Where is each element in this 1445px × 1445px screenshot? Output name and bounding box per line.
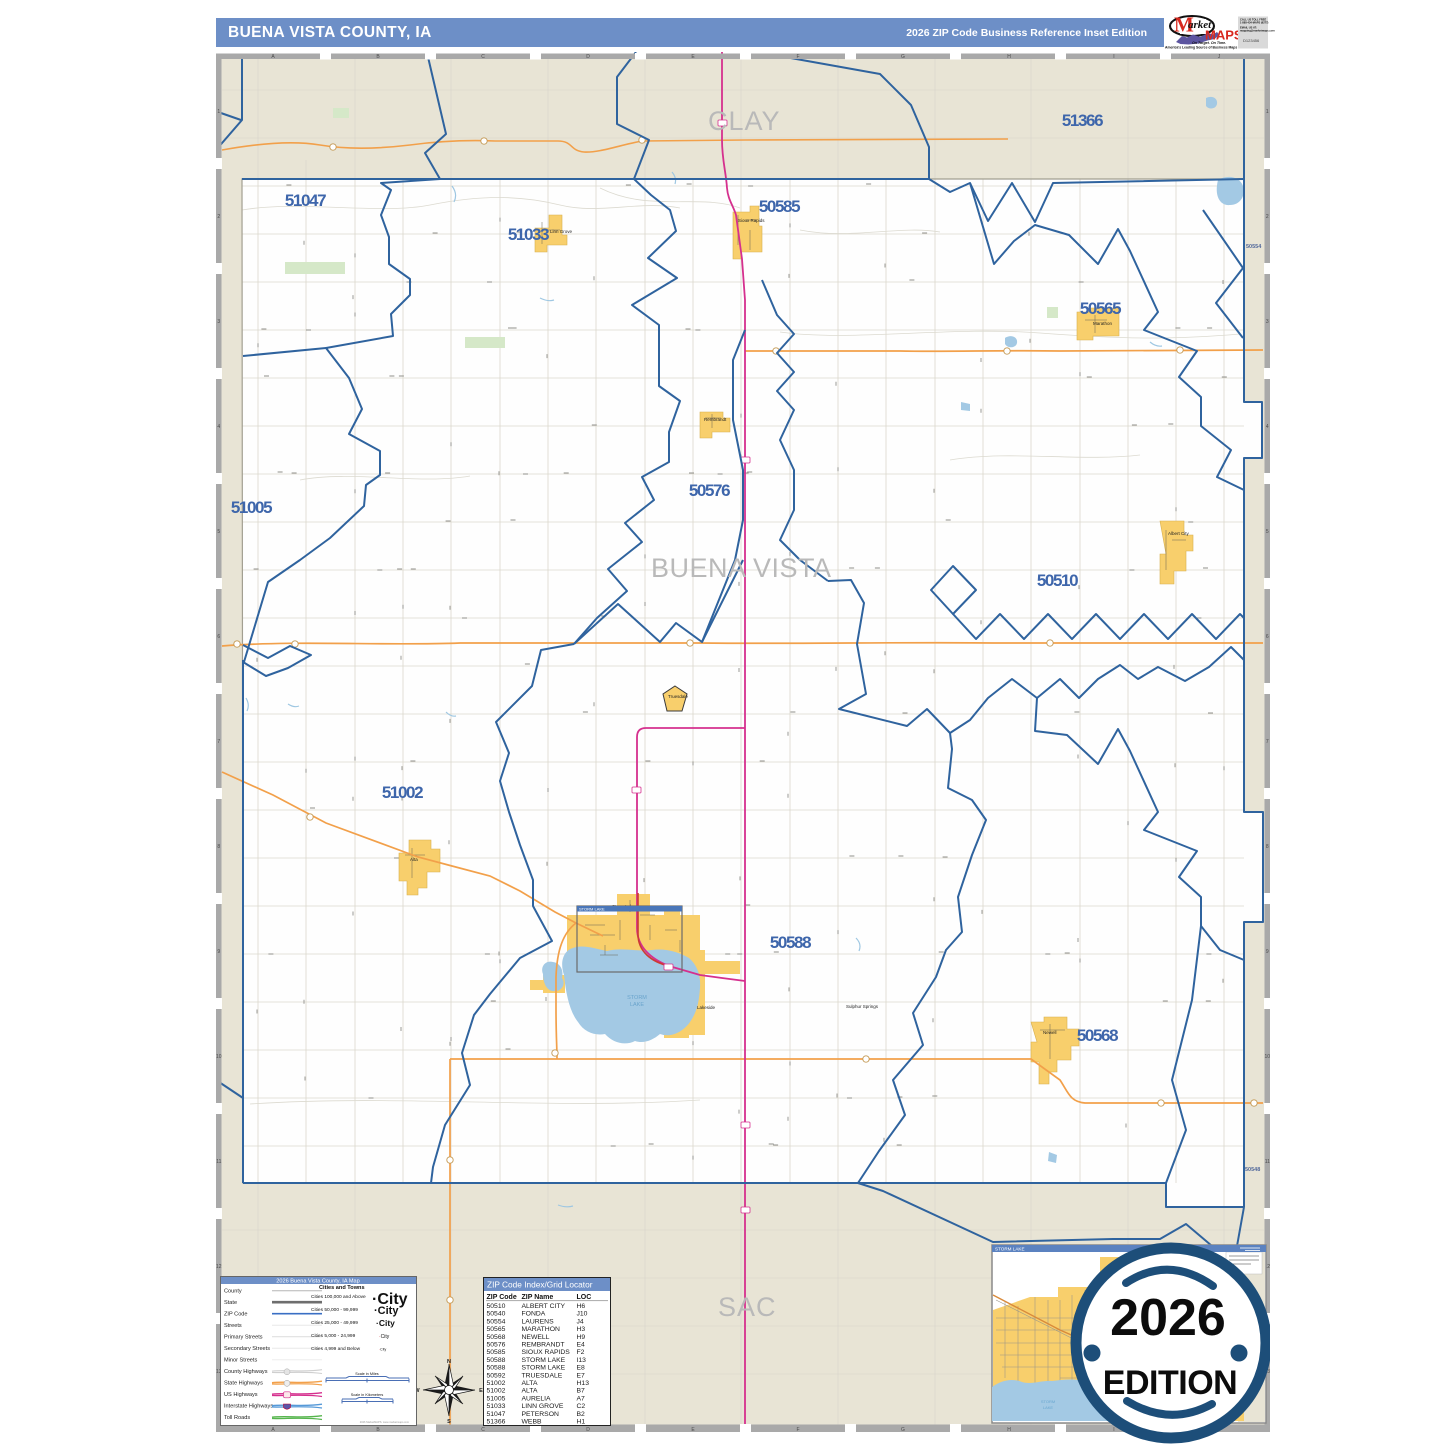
svg-text:G: G: [901, 54, 905, 60]
svg-text:1-888-434-MAPS (6277): 1-888-434-MAPS (6277): [1240, 21, 1269, 25]
svg-text:STORM: STORM: [627, 995, 647, 1001]
svg-text:Interstate Highways: Interstate Highways: [224, 1404, 273, 1410]
svg-text:NEWELL: NEWELL: [522, 1334, 550, 1341]
svg-text:E7: E7: [577, 1372, 586, 1379]
svg-text:6: 6: [217, 634, 220, 640]
svg-text:H9: H9: [577, 1334, 586, 1341]
svg-text:H6: H6: [577, 1303, 586, 1310]
svg-text:S: S: [447, 1419, 451, 1425]
svg-text:H: H: [1007, 54, 1011, 60]
svg-text:1: 1: [1266, 109, 1269, 115]
svg-text:STORM LAKE: STORM LAKE: [995, 1247, 1025, 1252]
svg-text:C: C: [481, 54, 485, 60]
svg-text:Toll Roads: Toll Roads: [224, 1415, 250, 1421]
svg-text:F2: F2: [577, 1349, 585, 1356]
svg-text:8: 8: [217, 844, 220, 850]
svg-text:ZIP Code: ZIP Code: [487, 1294, 517, 1301]
svg-text:Marathon: Marathon: [1093, 321, 1113, 326]
svg-text:Minor Streets: Minor Streets: [224, 1358, 257, 1364]
svg-text:AURELIA: AURELIA: [522, 1395, 552, 1402]
svg-text:6: 6: [1266, 634, 1269, 640]
svg-text:2: 2: [1266, 214, 1269, 220]
svg-text:Cities 100,000 and Above: Cities 100,000 and Above: [311, 1294, 366, 1300]
svg-text:US Highways: US Highways: [224, 1392, 258, 1398]
svg-text:I: I: [1113, 54, 1114, 60]
svg-text:FONDA: FONDA: [522, 1311, 546, 1318]
svg-text:Primary Streets: Primary Streets: [224, 1335, 263, 1341]
svg-text:EDITION: EDITION: [1103, 1364, 1237, 1402]
svg-text:50585: 50585: [487, 1349, 506, 1356]
svg-text:State: State: [224, 1300, 237, 1306]
svg-text:Secondary Streets: Secondary Streets: [224, 1346, 270, 1352]
svg-text:·City: ·City: [379, 1348, 386, 1352]
svg-text:Linn Grove: Linn Grove: [550, 229, 573, 234]
svg-text:4: 4: [217, 424, 220, 430]
svg-text:LAKE: LAKE: [1043, 1405, 1054, 1410]
svg-text:H3: H3: [577, 1326, 586, 1333]
svg-text:50588: 50588: [487, 1365, 506, 1372]
svg-text:·City: ·City: [374, 1305, 399, 1317]
svg-text:I: I: [1113, 1427, 1114, 1433]
svg-text:51047: 51047: [285, 191, 326, 210]
svg-text:1: 1: [217, 109, 220, 115]
svg-text:9: 9: [217, 949, 220, 955]
svg-text:50576: 50576: [689, 481, 730, 500]
svg-text:51366: 51366: [487, 1419, 506, 1426]
svg-text:STORM: STORM: [1041, 1399, 1055, 1404]
svg-text:LINN GROVE: LINN GROVE: [522, 1403, 564, 1410]
svg-text:·City: ·City: [376, 1318, 395, 1328]
svg-text:50565: 50565: [487, 1326, 506, 1333]
svg-text:TRUESDALE: TRUESDALE: [522, 1372, 563, 1379]
svg-text:ALTA: ALTA: [522, 1380, 538, 1387]
svg-text:2026: 2026: [1110, 1289, 1226, 1347]
svg-text:E8: E8: [577, 1365, 586, 1372]
svg-text:51002: 51002: [487, 1380, 506, 1387]
svg-text:50510: 50510: [1037, 571, 1078, 590]
svg-text:County: County: [224, 1289, 242, 1295]
svg-text:LOC: LOC: [577, 1294, 592, 1301]
svg-text:MARATHON: MARATHON: [522, 1326, 560, 1333]
svg-text:Cities 4,999 and Below: Cities 4,999 and Below: [311, 1346, 361, 1352]
svg-text:51005: 51005: [231, 498, 272, 517]
svg-text:SAC: SAC: [718, 1292, 777, 1322]
svg-text:8: 8: [1266, 844, 1269, 850]
svg-text:Sulphur Springs: Sulphur Springs: [846, 1004, 879, 1009]
svg-text:State Highways: State Highways: [224, 1381, 263, 1387]
svg-text:H1: H1: [577, 1419, 586, 1426]
svg-text:A7: A7: [577, 1395, 586, 1402]
svg-text:America's Leading Source of Bu: America's Leading Source of Business Map…: [1165, 46, 1237, 50]
svg-text:Cities and Towns: Cities and Towns: [319, 1285, 365, 1291]
svg-text:·City: ·City: [379, 1334, 390, 1340]
svg-text:50540: 50540: [487, 1311, 506, 1318]
svg-text:50548: 50548: [1245, 1167, 1260, 1173]
svg-text:3: 3: [1266, 319, 1269, 325]
svg-text:PETERSON: PETERSON: [522, 1411, 559, 1418]
svg-text:E4: E4: [577, 1342, 586, 1349]
svg-text:Truesdale: Truesdale: [668, 694, 688, 699]
svg-text:50585: 50585: [759, 197, 800, 216]
svg-text:SIOUX RAPIDS: SIOUX RAPIDS: [522, 1349, 571, 1356]
svg-text:2026 MarketMAPS. www.marketmap: 2026 MarketMAPS. www.marketmaps.com: [360, 1420, 409, 1424]
svg-text:Scale in Kilometers: Scale in Kilometers: [351, 1393, 384, 1397]
svg-text:50576: 50576: [487, 1342, 506, 1349]
svg-text:50588: 50588: [770, 933, 811, 952]
svg-text:2: 2: [217, 214, 220, 220]
svg-text:D: D: [586, 1427, 590, 1433]
svg-text:5: 5: [217, 529, 220, 535]
svg-text:51047: 51047: [487, 1411, 506, 1418]
svg-text:50554: 50554: [1246, 244, 1262, 250]
svg-text:51002: 51002: [382, 783, 423, 802]
svg-text:BUENA VISTA: BUENA VISTA: [651, 553, 832, 583]
svg-text:Lakeside: Lakeside: [697, 1005, 716, 1010]
svg-text:G: G: [901, 1427, 905, 1433]
svg-text:51033: 51033: [508, 225, 549, 244]
svg-text:H: H: [1007, 1427, 1011, 1433]
svg-text:WEBB: WEBB: [522, 1419, 542, 1426]
svg-text:12: 12: [216, 1264, 222, 1270]
svg-text:3: 3: [217, 319, 220, 325]
svg-text:Cities 25,000 - 49,999: Cities 25,000 - 49,999: [311, 1320, 358, 1326]
svg-text:ZIP Code: ZIP Code: [224, 1312, 248, 1318]
svg-text:STORM LAKE: STORM LAKE: [579, 907, 605, 912]
svg-text:51033: 51033: [487, 1403, 506, 1410]
svg-text:10: 10: [1265, 1054, 1270, 1060]
svg-text:10: 10: [216, 1054, 222, 1060]
svg-text:On Target. On Time.: On Target. On Time.: [1192, 41, 1226, 45]
svg-text:LAKE: LAKE: [630, 1002, 644, 1008]
svg-text:B7: B7: [577, 1388, 586, 1395]
svg-text:F: F: [796, 54, 799, 60]
svg-text:51005: 51005: [487, 1395, 506, 1402]
svg-text:51002: 51002: [487, 1388, 506, 1395]
svg-text:CLAY: CLAY: [708, 106, 781, 136]
svg-text:H13: H13: [577, 1380, 590, 1387]
svg-text:REMBRANDT: REMBRANDT: [522, 1342, 565, 1349]
svg-text:Cities 50,000 - 99,999: Cities 50,000 - 99,999: [311, 1307, 358, 1313]
svg-text:50554: 50554: [487, 1318, 506, 1325]
svg-text:D123456: D123456: [1243, 38, 1260, 43]
svg-text:50568: 50568: [487, 1334, 506, 1341]
svg-text:50592: 50592: [487, 1372, 506, 1379]
svg-text:50510: 50510: [487, 1303, 506, 1310]
svg-text:Alta: Alta: [410, 857, 418, 862]
svg-text:Scale in Miles: Scale in Miles: [355, 1372, 379, 1376]
svg-text:mapping@marketmaps.com: mapping@marketmaps.com: [1240, 29, 1275, 33]
svg-text:51366: 51366: [1062, 111, 1103, 130]
svg-text:4: 4: [1266, 424, 1269, 430]
svg-text:Sioux Rapids: Sioux Rapids: [738, 218, 765, 223]
svg-text:N: N: [447, 1359, 451, 1365]
svg-text:11: 11: [1265, 1159, 1270, 1165]
svg-text:11: 11: [216, 1159, 221, 1165]
svg-text:5: 5: [1266, 529, 1269, 535]
svg-text:50588: 50588: [487, 1357, 506, 1364]
svg-text:C2: C2: [577, 1403, 586, 1410]
svg-text:STORM LAKE: STORM LAKE: [522, 1357, 566, 1364]
svg-text:2026 Buena Vista County, IA Ma: 2026 Buena Vista County, IA Map: [276, 1279, 359, 1285]
svg-text:50568: 50568: [1077, 1026, 1118, 1045]
svg-text:LAURENS: LAURENS: [522, 1318, 555, 1325]
svg-text:Newell: Newell: [1043, 1030, 1057, 1035]
svg-text:F: F: [796, 1427, 799, 1433]
svg-text:ZIP Code Index/Grid Locator: ZIP Code Index/Grid Locator: [487, 1280, 593, 1290]
svg-text:9: 9: [1266, 949, 1269, 955]
svg-text:ALTA: ALTA: [522, 1388, 538, 1395]
svg-text:Cities 5,000 - 24,999: Cities 5,000 - 24,999: [311, 1333, 356, 1339]
svg-text:County Highways: County Highways: [224, 1369, 268, 1375]
svg-text:50565: 50565: [1080, 299, 1121, 318]
svg-text:D: D: [586, 54, 590, 60]
svg-text:7: 7: [1266, 739, 1269, 745]
svg-text:Rembrandt: Rembrandt: [704, 417, 727, 422]
svg-text:Streets: Streets: [224, 1323, 242, 1329]
svg-text:Albert City: Albert City: [1168, 531, 1190, 536]
svg-text:B2: B2: [577, 1411, 586, 1418]
svg-text:7: 7: [217, 739, 220, 745]
svg-text:C: C: [481, 1427, 485, 1433]
svg-text:J10: J10: [577, 1311, 588, 1318]
svg-text:I13: I13: [577, 1357, 587, 1364]
svg-text:STORM LAKE: STORM LAKE: [522, 1365, 566, 1372]
svg-text:J4: J4: [577, 1318, 584, 1325]
svg-text:ZIP Name: ZIP Name: [522, 1294, 554, 1301]
svg-text:ALBERT CITY: ALBERT CITY: [522, 1303, 566, 1310]
